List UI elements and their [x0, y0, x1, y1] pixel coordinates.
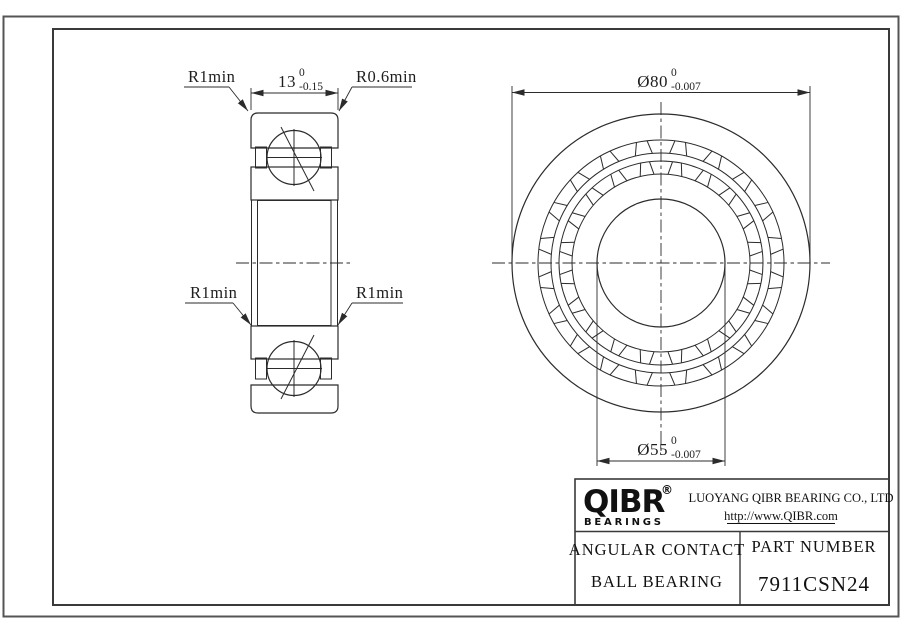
- cage-pocket-edge: [745, 334, 752, 346]
- cage-pocket-edge: [768, 237, 782, 238]
- cage-pocket-edge: [670, 141, 675, 154]
- cage-pocket-edge: [686, 142, 687, 156]
- cage-pocket-edge: [539, 249, 552, 254]
- cage-pocket-edge: [755, 202, 768, 205]
- cage-pocket-edge: [586, 321, 594, 332]
- fillet-label-top-left: R1min: [188, 67, 235, 86]
- cage-pocket-edge: [647, 373, 652, 386]
- dim-width-tol-lower: -0.15: [299, 81, 323, 93]
- cage-pocket-edge: [719, 331, 730, 339]
- cage-pocket-edge: [745, 180, 752, 192]
- cage-pocket-edge: [592, 331, 603, 339]
- cage-pocket-edge: [540, 288, 554, 289]
- cage-pocket-edge: [611, 339, 615, 352]
- cage-pocket-edge: [649, 162, 654, 175]
- cage-pocket-edge: [592, 188, 603, 196]
- cage-pocket-edge: [755, 320, 768, 323]
- cage-pocket-edge: [743, 221, 754, 229]
- cage-pocket-edge: [771, 249, 784, 254]
- website-link[interactable]: http://www.QIBR.com: [724, 509, 838, 523]
- cage-pocket-edge: [718, 156, 721, 169]
- drawing-sheet: 13 0 -0.15 Ø80 0 -0.007 Ø55 0 -0.007 R1m…: [0, 0, 900, 636]
- cage-pocket-edge: [578, 347, 590, 354]
- cage-pocket-edge: [686, 370, 687, 384]
- cage-pocket-edge: [649, 352, 654, 365]
- cage-pocket-edge: [635, 142, 636, 156]
- dimension-od: Ø80 0 -0.007: [512, 67, 810, 263]
- cage-pocket-edge: [568, 221, 579, 229]
- cage-pocket-edge: [549, 305, 559, 314]
- cage-pocket-edge: [718, 357, 721, 370]
- cage-pocket-edge: [708, 339, 712, 352]
- cage-pocket-edge: [763, 212, 773, 221]
- part-number-label: PART NUMBER: [751, 537, 876, 556]
- cage-pocket-edge: [539, 272, 552, 277]
- cage-pocket-edge: [750, 251, 763, 256]
- cage-pocket-edge: [568, 297, 579, 305]
- brand-logo: QIBR ® BEARINGS: [583, 483, 673, 528]
- cage-pocket-edge: [572, 213, 585, 217]
- fillet-leaders: R1min R0.6min R1min R1min: [184, 67, 417, 325]
- cage-pocket-edge: [737, 310, 750, 314]
- cage-pocket-edge: [554, 202, 567, 205]
- cage-pocket-edge: [732, 172, 744, 179]
- dim-width-value: 13: [278, 72, 296, 91]
- fillet-label-bottom-left: R1min: [190, 283, 237, 302]
- cage-pocket-edge: [719, 188, 730, 196]
- cage-pocket-edge: [619, 170, 627, 181]
- cage-pocket-edge: [729, 321, 737, 332]
- cage-pocket-edge: [695, 345, 703, 356]
- cage-pocket-edge: [668, 352, 673, 365]
- cage-pocket-edge: [570, 180, 577, 192]
- dim-bore-tol-lower: -0.007: [671, 449, 701, 461]
- contact-angle-line-top: [281, 127, 314, 191]
- cage-pocket-edge: [635, 370, 636, 384]
- dimension-width: 13 0 -0.15: [251, 67, 338, 110]
- cage-pocket-edge: [763, 305, 773, 314]
- cage-pocket-edge: [610, 365, 619, 375]
- sheet-outer-border: [4, 17, 899, 617]
- cage-pocket-edge: [600, 357, 603, 370]
- cage-pocket-edge: [619, 345, 627, 356]
- cage-pocket-edge: [750, 270, 763, 275]
- dim-bore-value: Ø55: [637, 440, 668, 459]
- cage-pocket-edge: [670, 373, 675, 386]
- front-view: [492, 102, 830, 455]
- cage-bottom-left: [256, 358, 267, 379]
- cage-pocket-edge: [729, 194, 737, 205]
- part-number-value: 7911CSN24: [758, 572, 870, 596]
- cage-pocket-edge: [554, 320, 567, 323]
- dim-od-tol-lower: -0.007: [671, 81, 701, 93]
- cage-pocket-edge: [600, 156, 603, 169]
- cage-pocket-edge: [708, 174, 712, 187]
- cage-bottom-right: [321, 358, 332, 379]
- cage-pocket-edge: [768, 288, 782, 289]
- cage-pocket-edge: [703, 151, 712, 161]
- cage-pocket-edge: [572, 310, 585, 314]
- cage-pocket-edge: [732, 347, 744, 354]
- cage-pocket-edge: [578, 172, 590, 179]
- fillet-label-top-right: R0.6min: [356, 67, 417, 86]
- contact-angle-line-bottom: [281, 335, 314, 399]
- cage-pocket-edge: [570, 334, 577, 346]
- registered-mark-icon: ®: [661, 483, 673, 497]
- cage-pocket-edge: [668, 162, 673, 175]
- fillet-label-bottom-right: R1min: [356, 283, 403, 302]
- product-type-line2: BALL BEARING: [591, 572, 723, 591]
- cage-pocket-edge: [560, 270, 573, 275]
- cage-pocket-edge: [549, 212, 559, 221]
- dim-od-tol-upper: 0: [671, 67, 677, 79]
- cage-pocket-edge: [743, 297, 754, 305]
- drawing-canvas: 13 0 -0.15 Ø80 0 -0.007 Ø55 0 -0.007 R1m…: [0, 0, 900, 636]
- dim-od-value: Ø80: [637, 72, 668, 91]
- cage-pocket-edge: [771, 272, 784, 277]
- dim-width-tol-upper: 0: [299, 67, 305, 79]
- logo-subtext: BEARINGS: [584, 517, 664, 528]
- cage-top-right: [321, 147, 332, 168]
- cage-pocket-edge: [586, 194, 594, 205]
- cage-pocket-edge: [647, 141, 652, 154]
- title-block: QIBR ® BEARINGS LUOYANG QIBR BEARING CO.…: [569, 479, 894, 605]
- dim-bore-tol-upper: 0: [671, 435, 677, 447]
- cage-pocket-edge: [610, 151, 619, 161]
- company-name: LUOYANG QIBR BEARING CO., LTD: [688, 491, 893, 505]
- cage-pocket-edge: [737, 213, 750, 217]
- cage-pocket-edge: [540, 237, 554, 238]
- cage-pocket-edge: [703, 365, 712, 375]
- cage-pocket-edge: [560, 251, 573, 256]
- logo-text: QIBR: [583, 484, 666, 520]
- cage-pocket-edge: [695, 170, 703, 181]
- product-type-line1: ANGULAR CONTACT: [569, 540, 745, 559]
- cross-section-view: [236, 113, 352, 413]
- cage-pocket-edge: [611, 174, 615, 187]
- cage-top-left: [256, 147, 267, 168]
